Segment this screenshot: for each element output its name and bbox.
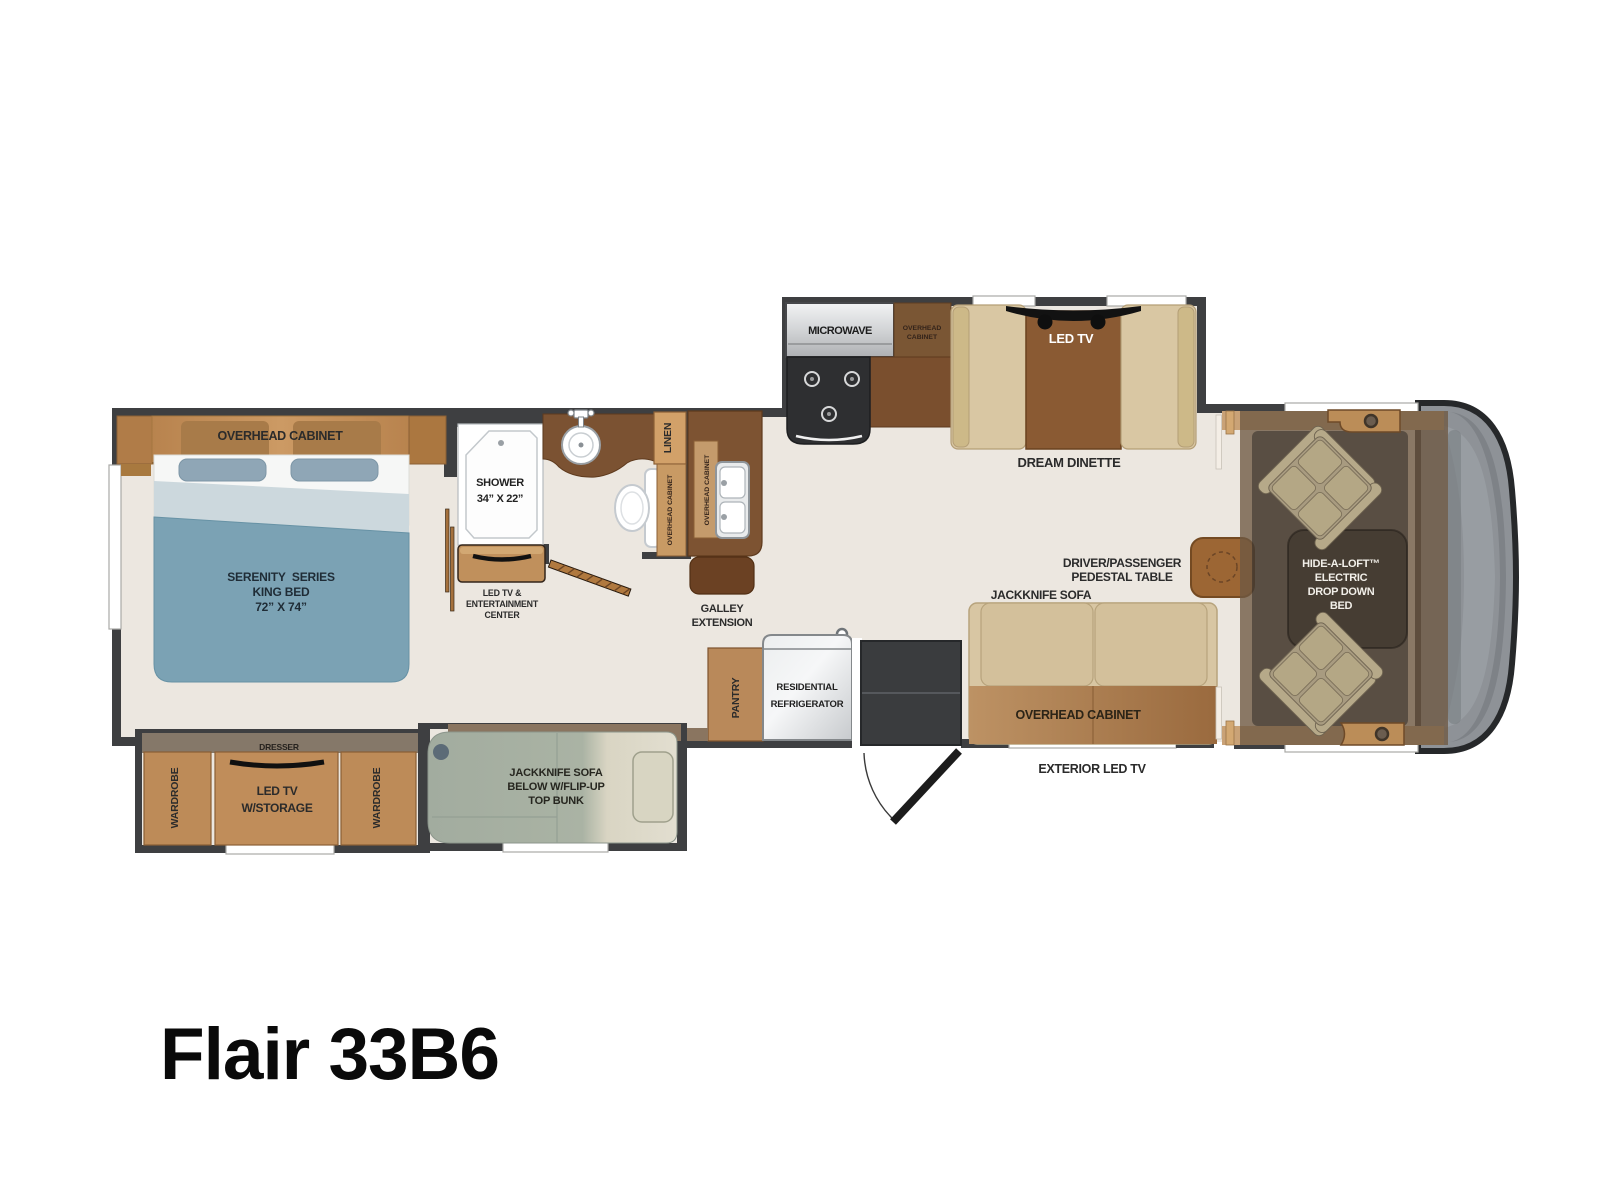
svg-text:HIDE-A-LOFT™: HIDE-A-LOFT™ bbox=[1302, 558, 1380, 570]
svg-text:72” X 74”: 72” X 74” bbox=[255, 600, 307, 614]
svg-text:OVERHEAD CABINET: OVERHEAD CABINET bbox=[1015, 708, 1141, 722]
svg-text:WARDROBE: WARDROBE bbox=[371, 767, 383, 828]
svg-text:RESIDENTIAL: RESIDENTIAL bbox=[776, 682, 838, 693]
svg-text:KING BED: KING BED bbox=[252, 585, 310, 599]
svg-text:GALLEY: GALLEY bbox=[701, 603, 745, 615]
svg-text:ENTERTAINMENT: ENTERTAINMENT bbox=[466, 599, 539, 609]
svg-text:CENTER: CENTER bbox=[485, 610, 521, 620]
svg-text:DREAM DINETTE: DREAM DINETTE bbox=[1018, 455, 1122, 470]
svg-text:REFRIGERATOR: REFRIGERATOR bbox=[771, 699, 844, 710]
svg-text:TOP BUNK: TOP BUNK bbox=[528, 795, 584, 807]
svg-text:JACKKNIFE SOFA: JACKKNIFE SOFA bbox=[509, 767, 602, 779]
svg-text:CABINET: CABINET bbox=[907, 334, 938, 341]
svg-text:OVERHEAD CABINET: OVERHEAD CABINET bbox=[217, 429, 343, 443]
svg-text:BELOW W/FLIP-UP: BELOW W/FLIP-UP bbox=[507, 781, 604, 793]
svg-text:Flair 33B6: Flair 33B6 bbox=[160, 1014, 499, 1095]
svg-text:OVERHEAD CABINET: OVERHEAD CABINET bbox=[667, 474, 674, 545]
svg-text:SERENITY SERIES: SERENITY SERIES bbox=[227, 570, 335, 584]
svg-text:JACKKNIFE SOFA: JACKKNIFE SOFA bbox=[991, 588, 1092, 602]
svg-text:WARDROBE: WARDROBE bbox=[169, 767, 181, 828]
svg-text:PEDESTAL TABLE: PEDESTAL TABLE bbox=[1071, 570, 1172, 584]
svg-text:PANTRY: PANTRY bbox=[730, 677, 742, 718]
svg-text:ELECTRIC: ELECTRIC bbox=[1315, 572, 1368, 584]
svg-text:SHOWER: SHOWER bbox=[476, 477, 524, 489]
svg-text:LED TV &: LED TV & bbox=[483, 588, 522, 598]
svg-text:DRIVER/PASSENGER: DRIVER/PASSENGER bbox=[1063, 556, 1182, 570]
svg-text:DRESSER: DRESSER bbox=[259, 742, 299, 752]
svg-text:EXTERIOR LED TV: EXTERIOR LED TV bbox=[1038, 762, 1146, 776]
svg-text:EXTENSION: EXTENSION bbox=[692, 617, 753, 629]
svg-text:W/STORAGE: W/STORAGE bbox=[241, 801, 312, 815]
svg-text:OVERHEAD: OVERHEAD bbox=[903, 325, 942, 332]
svg-text:OVERHEAD CABINET: OVERHEAD CABINET bbox=[704, 454, 711, 525]
svg-text:LED TV: LED TV bbox=[1049, 331, 1094, 346]
svg-text:BED: BED bbox=[1330, 600, 1353, 612]
svg-text:LED TV: LED TV bbox=[257, 784, 298, 798]
svg-text:MICROWAVE: MICROWAVE bbox=[808, 325, 872, 337]
svg-text:DROP DOWN: DROP DOWN bbox=[1308, 586, 1375, 598]
svg-text:34” X 22”: 34” X 22” bbox=[477, 493, 523, 505]
svg-text:LINEN: LINEN bbox=[662, 423, 674, 454]
